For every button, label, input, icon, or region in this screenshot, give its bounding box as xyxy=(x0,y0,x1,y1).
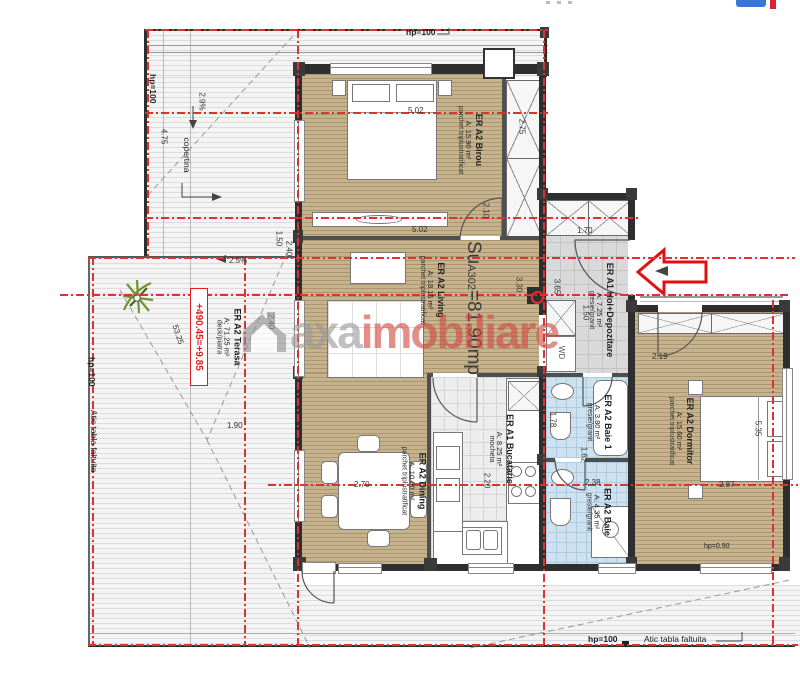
room-label-birou: ER A2 Birou A: 15.90 m² parchet triplust… xyxy=(455,75,485,205)
wall-hall-right-lower xyxy=(628,295,635,570)
dimension-label: 2.9% xyxy=(198,92,207,110)
window-top-birou xyxy=(330,63,432,75)
wall-birou-bottom-b xyxy=(500,236,539,240)
room-area: A: 15.60 m² xyxy=(675,412,684,451)
toilet xyxy=(550,498,571,526)
axis-line-red xyxy=(244,257,246,645)
level-mark: +490.45=+9.85 xyxy=(190,288,208,386)
room-finish: mocheta xyxy=(487,436,495,463)
window-bottom-dining xyxy=(338,563,382,574)
dining-chair xyxy=(321,461,338,484)
room-label-living: ER A2 Living A: 18.15 m² parchet triplus… xyxy=(417,225,447,355)
dimension-label: 1.62 xyxy=(579,447,588,463)
dimension-label: 2.40 xyxy=(266,314,275,330)
wall-hall-top xyxy=(539,193,635,200)
dimension-label: 2.10 xyxy=(481,203,490,219)
parapet-label: hp=100 xyxy=(87,357,97,397)
room-label-hol: ER A1 Hol+Depozitare A: 7.25 m² gresie/g… xyxy=(587,235,615,385)
axis-line-red xyxy=(88,644,798,646)
skylight-box xyxy=(483,48,515,79)
nightstand xyxy=(332,80,346,96)
sink-bowl xyxy=(483,530,498,550)
room-code: ER A2 Dormitor xyxy=(684,398,695,465)
su-value: =81.90mp xyxy=(462,290,484,375)
room-finish: parchet triplustratificat xyxy=(399,447,407,515)
window-left-birou xyxy=(294,120,305,202)
window-bottom-baie xyxy=(598,563,636,574)
dimension-label: 4.75 xyxy=(159,129,168,145)
top-edge-dot xyxy=(568,1,572,4)
wall-baie1-top-a xyxy=(546,373,583,377)
wall-dormitor-top-b xyxy=(702,305,790,312)
room-code: ER A1 Hol+Depozitare xyxy=(604,263,615,357)
room-area: A: 8.25 m² xyxy=(495,432,504,467)
room-area: A: 10.00 m² xyxy=(408,462,417,501)
dormitor-eaves-line xyxy=(640,296,783,298)
dimension-label: 2.20 xyxy=(482,473,491,489)
terrace-door-gap xyxy=(302,562,336,574)
washer-label: WD xyxy=(557,346,566,359)
dimension-label: 1.70 xyxy=(577,226,593,235)
pier xyxy=(293,62,305,76)
terrace-eaves-line xyxy=(145,45,548,46)
axis-line-red xyxy=(145,29,548,31)
axis-line-red xyxy=(543,30,545,645)
oven xyxy=(436,446,460,470)
top-edge-dot xyxy=(546,1,550,4)
parapet-label: hp=100 xyxy=(588,634,618,644)
total-area-label: Su A302 =81.90mp xyxy=(460,215,484,401)
axis-line-red xyxy=(772,300,774,645)
dimension-label: 2.19 xyxy=(652,352,668,361)
room-area: A: 7.25 m² xyxy=(595,293,604,328)
window-height-label: hp=0.90 xyxy=(704,543,730,550)
dimension-label: 2.87 xyxy=(719,480,735,489)
wall-kitchen-top-a xyxy=(427,373,433,377)
bed-fold-line xyxy=(758,396,759,480)
dimension-label: 2.5% xyxy=(229,256,247,265)
room-code: ER A2 Baie 1 xyxy=(602,394,613,449)
room-finish: parchet triplustratificat xyxy=(667,397,675,465)
wall-baths-divider-a xyxy=(546,458,555,462)
pier xyxy=(779,557,790,571)
room-label-terasa: ER A2 Terasa A: 71.25 m² deck/piatra xyxy=(214,275,244,400)
attic-label: Atic tabla faltuita xyxy=(89,410,99,490)
bathroom-sink xyxy=(551,383,574,400)
pillow xyxy=(396,84,434,102)
dimension-label: 2.75 xyxy=(517,119,526,135)
room-finish: parchet triplustratificat xyxy=(418,256,426,324)
sink-bowl xyxy=(466,530,481,550)
dimension-label: 2.38 xyxy=(585,478,601,487)
pillow xyxy=(767,441,783,477)
dimension-label: 5.35 xyxy=(753,421,762,437)
floor-plan-canvas: WD xyxy=(0,0,800,675)
dimension-label: 1.50 xyxy=(581,305,590,321)
room-finish: deck/piatra xyxy=(214,320,222,354)
room-code: ER A2 Birou xyxy=(473,114,484,166)
dimension-label: 1.78 xyxy=(548,412,557,428)
dormitor-closet xyxy=(638,313,713,334)
dimension-label: 5.02 xyxy=(408,106,424,115)
window-left-dining xyxy=(294,450,305,522)
pillow xyxy=(767,401,783,437)
top-edge-dot xyxy=(557,1,561,4)
wall-kitchen-top-b xyxy=(477,373,539,377)
top-edge-red-mark xyxy=(770,0,776,9)
canopy-label: copertina xyxy=(182,120,192,190)
pier xyxy=(626,188,637,200)
appliance xyxy=(436,478,460,502)
window-right-dormitor xyxy=(782,368,793,480)
pier xyxy=(626,300,637,312)
room-code: ER A2 Dining xyxy=(417,453,428,510)
room-label-dormitor: ER A2 Dormitor A: 15.60 m² parchet tripl… xyxy=(666,356,696,506)
room-area: A: 15.90 m² xyxy=(464,121,473,160)
dining-chair xyxy=(367,530,390,547)
pier xyxy=(424,558,437,571)
stove-burner xyxy=(525,466,536,477)
room-finish: gresie/granit xyxy=(584,493,592,532)
dimension-label: 2.40 xyxy=(284,241,293,257)
room-area: A: 4.35 m² xyxy=(593,495,602,530)
pier xyxy=(779,300,790,312)
su-subscript: A302 xyxy=(465,264,477,290)
room-finish: gresie/granit xyxy=(585,403,593,442)
dimension-label: 5.02 xyxy=(412,225,428,234)
dimension-label: 3.30 xyxy=(514,277,523,293)
room-area: A: 3.80 m² xyxy=(593,405,602,440)
room-code: ER A2 Terasa xyxy=(232,308,243,365)
dimension-label: 1.90 xyxy=(227,421,243,430)
room-area: A: 71.25 m² xyxy=(223,318,232,357)
axis-line-red xyxy=(145,217,640,219)
stove-burner xyxy=(525,486,536,497)
sofa-living xyxy=(327,300,424,378)
nightstand xyxy=(438,80,452,96)
attic-label: Atic tabla faltuita xyxy=(644,634,706,644)
room-area: A: 18.15 m² xyxy=(426,271,435,310)
parapet-label: hp=100 xyxy=(406,27,436,37)
axis-line-red xyxy=(145,112,548,114)
dimension-label: 1.50 xyxy=(274,231,283,247)
terrace-bottom-strip xyxy=(295,585,800,647)
room-label-dining: ER A2 Dining A: 10.00 m² parchet triplus… xyxy=(399,419,429,544)
terrace-upper-left xyxy=(145,77,295,258)
pillow xyxy=(352,84,390,102)
axis-line-red xyxy=(297,30,299,645)
parapet-label: hp=100 xyxy=(148,74,158,114)
room-code: ER A2 Living xyxy=(435,262,446,317)
top-edge-blue-button xyxy=(736,0,766,7)
room-code: ER A1 Bucatarie xyxy=(504,414,515,484)
window-left-living xyxy=(294,300,305,377)
room-code: ER A2 Baie xyxy=(602,488,613,536)
dining-chair xyxy=(321,495,338,518)
dining-chair xyxy=(357,435,380,452)
room-finish: parchet triplustratificat xyxy=(456,106,464,174)
dimension-label: 2.70 xyxy=(354,480,370,489)
window-bottom-dormitor xyxy=(700,563,772,574)
wall-closet xyxy=(502,74,506,236)
dimension-label: 3.65 xyxy=(552,279,561,295)
su-prefix: Su xyxy=(462,241,484,264)
window-bottom-kitchen xyxy=(468,563,514,574)
hall-shaft xyxy=(546,300,576,336)
dormitor-eaves-line xyxy=(640,301,783,302)
axis-line-red xyxy=(147,30,149,257)
room-label-baie1: ER A2 Baie 1 A: 3.80 m² gresie/granit xyxy=(586,377,612,467)
